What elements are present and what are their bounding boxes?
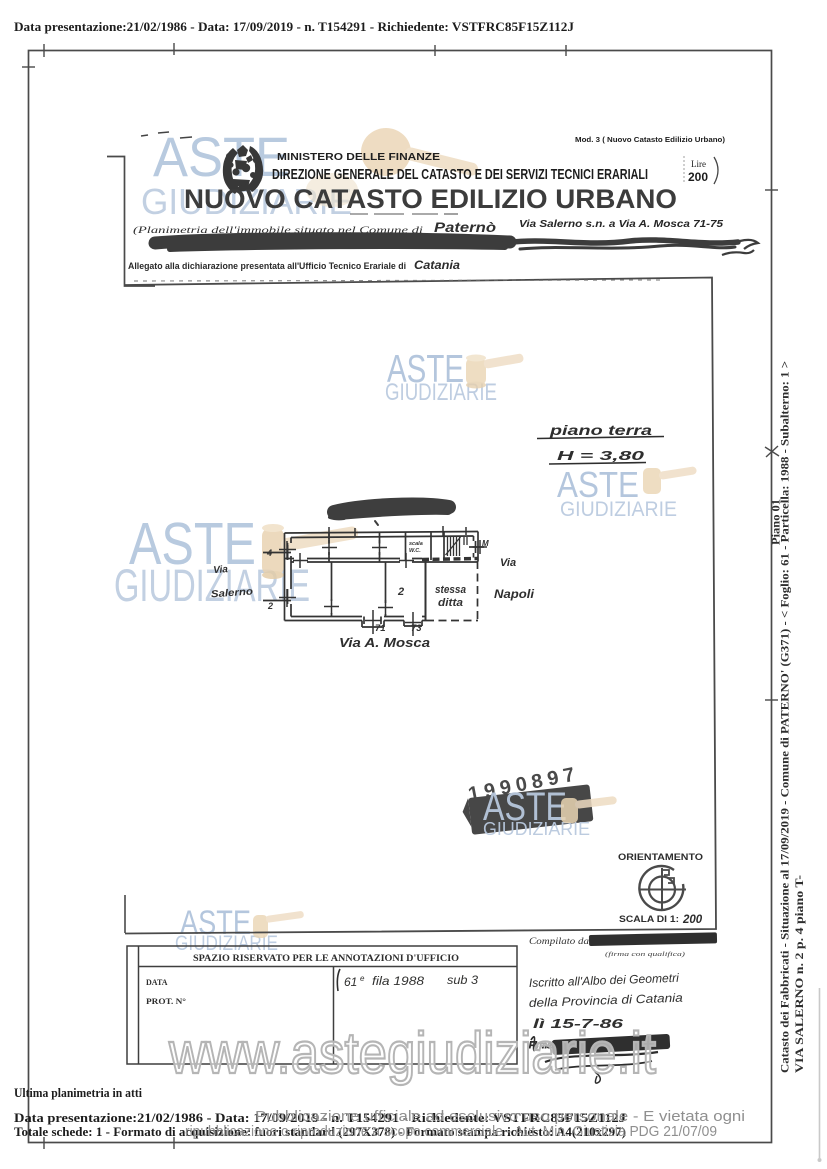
svg-text:scala: scala [409,541,423,547]
svg-text:2: 2 [267,601,273,611]
svg-text:4: 4 [266,548,272,558]
svg-text:Via A. Mosca: Via A. Mosca [339,636,430,650]
svg-text:73: 73 [411,623,422,634]
svg-text:200: 200 [682,914,703,926]
svg-text:MINISTERO DELLE FINANZE: MINISTERO DELLE FINANZE [277,151,440,163]
svg-text:fila 1988: fila 1988 [372,974,424,988]
svg-text:Iscritto all'Albo dei Geometr: Iscritto all'Albo dei Geometri [529,971,680,990]
svg-text:Catania: Catania [414,258,460,272]
svg-text:GIUDIZIARIE: GIUDIZIARIE [560,498,677,521]
svg-text:200: 200 [688,170,708,184]
svg-text:Via Salerno s.n. a Via A. Mo: Via Salerno s.n. a Via A. Mosca 71-75 [519,218,723,230]
svg-text:VIA SALERNO n. 2 p. 4 piano T-: VIA SALERNO n. 2 p. 4 piano T- [792,875,806,1073]
svg-text:ASTE: ASTE [153,125,290,188]
svg-text:H = 3,80: H = 3,80 [557,449,644,463]
svg-text:Data presentazione:21/02/1986: Data presentazione:21/02/1986 - Data: 17… [14,19,574,34]
svg-text:61: 61 [344,975,357,989]
svg-text:Paternò: Paternò [434,220,496,235]
svg-text:71: 71 [375,623,386,634]
svg-text:piano terra: piano terra [549,423,653,438]
svg-text:DIREZIONE GENERALE DEL CATASTO: DIREZIONE GENERALE DEL CATASTO E DEI SER… [272,167,648,183]
svg-text:sub 3: sub 3 [447,973,478,987]
svg-text:(firma con qualifica): (firma con qualifica) [605,951,685,958]
svg-text:della Provincia di Catania: della Provincia di Catania [529,991,684,1010]
svg-text:M: M [482,539,489,548]
svg-text:PROT. N°: PROT. N° [146,997,186,1006]
svg-text:Compilato da: Compilato da [529,936,590,946]
svg-text:stessa: stessa [435,584,466,596]
svg-text:ditta: ditta [438,597,463,609]
svg-text:Via: Via [213,564,229,576]
svg-text:Allegato alla dichiarazione pr: Allegato alla dichiarazione presentata a… [128,261,406,271]
svg-text:e: e [360,974,365,983]
svg-text:DATA: DATA [146,978,168,987]
svg-text:Piano 01: Piano 01 [771,499,783,545]
svg-text:SCALA DI 1:: SCALA DI 1: [619,914,679,924]
svg-text:W.C.: W.C. [409,548,421,554]
svg-text:www.astegiudiziarie.it: www.astegiudiziarie.it [168,1021,656,1086]
svg-text:NUOVO CATASTO EDILIZIO URBANO: NUOVO CATASTO EDILIZIO URBANO [184,184,677,214]
svg-text:ripubblicazione o riproduzione: ripubblicazione o riproduzione a scopo c… [185,1124,717,1140]
svg-text:Mod. 3 ( Nuovo Catasto Edilizi: Mod. 3 ( Nuovo Catasto Edilizio Urbano) [575,137,725,144]
svg-text:Napoli: Napoli [494,587,535,601]
svg-text:Via: Via [500,557,516,569]
svg-text:Catasto dei Fabbricati - Situa: Catasto dei Fabbricati - Situazione al 1… [778,361,792,1073]
svg-text:Pubblicazione ufficiale ad esc: Pubblicazione ufficiale ad esclusivo uso… [255,1109,745,1125]
svg-text:ORIENTAMENTO: ORIENTAMENTO [618,852,703,863]
svg-text:2: 2 [397,586,404,598]
svg-text:Ultima planimetria in atti: Ultima planimetria in atti [14,1085,142,1100]
svg-text:Lire: Lire [691,159,706,169]
svg-text:SPAZIO RISERVATO PER LE ANNOTA: SPAZIO RISERVATO PER LE ANNOTAZIONI D'UF… [193,954,459,964]
